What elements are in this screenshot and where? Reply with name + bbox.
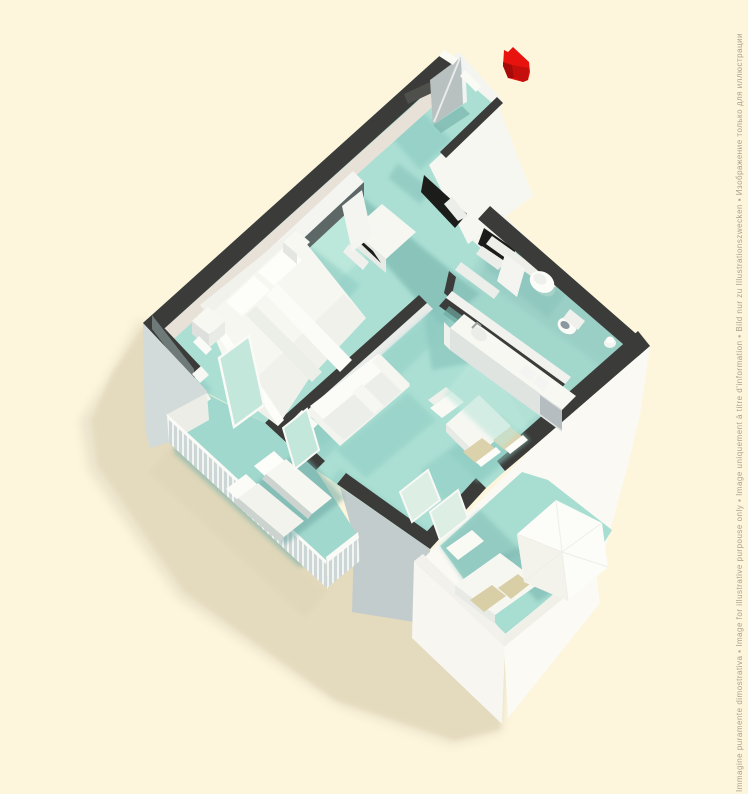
svg-text:Immagine puramente dimostrativ: Immagine puramente dimostrativa ▪ Image … (735, 33, 744, 792)
